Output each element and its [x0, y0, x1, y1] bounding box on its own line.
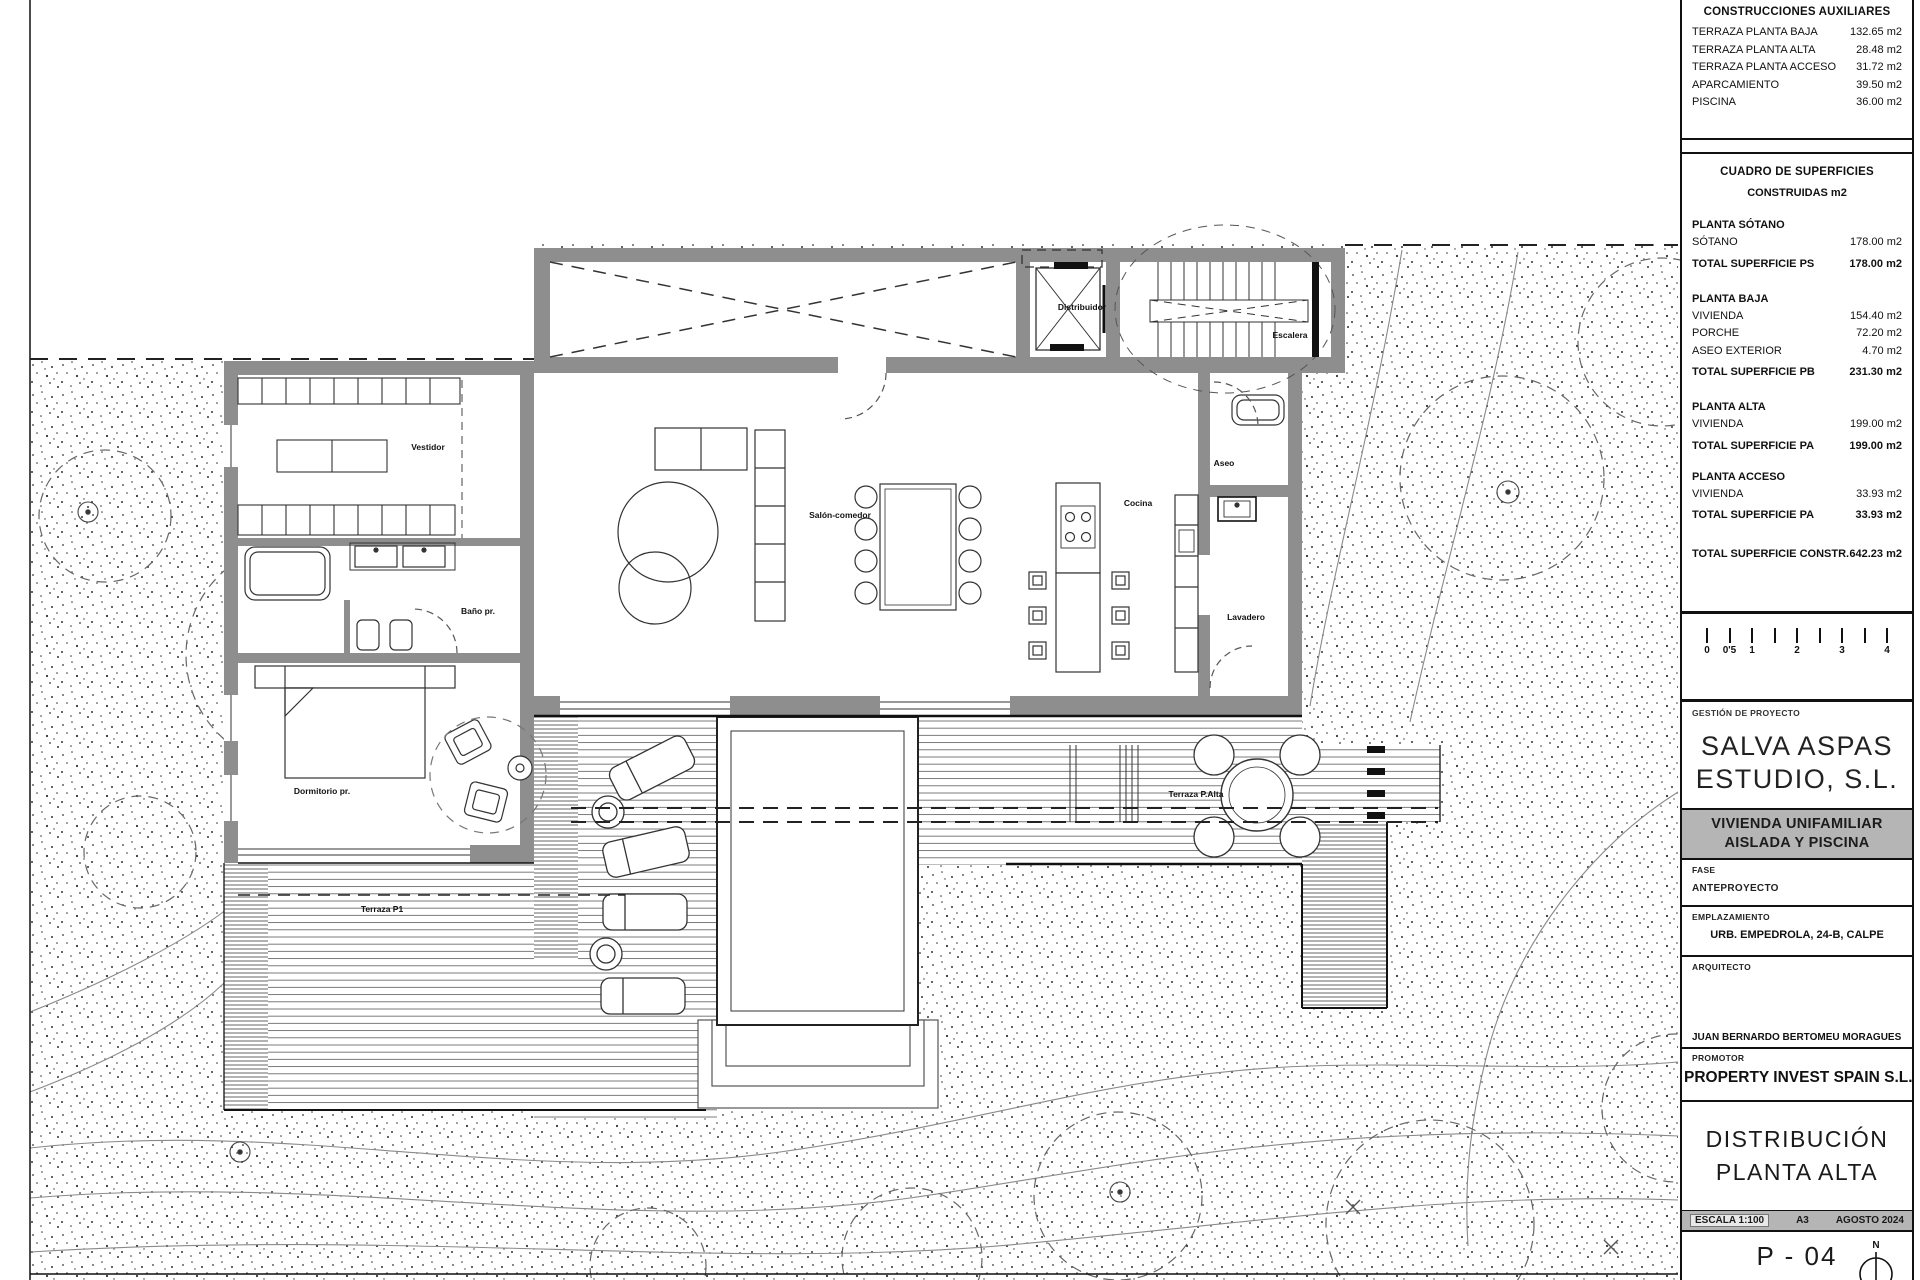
sheet-number: P - 04: [1757, 1241, 1838, 1272]
group-total: TOTAL SUPERFICIE PS178.00 m2: [1692, 255, 1902, 273]
location-value: URB. EMPEDROLA, 24-B, CALPE: [1692, 929, 1902, 941]
drawing-title-line: PLANTA ALTA: [1716, 1156, 1878, 1189]
group-total: TOTAL SUPERFICIE PA199.00 m2: [1692, 437, 1902, 455]
scale-tick: 3: [1835, 628, 1849, 657]
table-row: PORCHE72.20 m2: [1692, 325, 1902, 343]
group-total: TOTAL SUPERFICIE PB231.30 m2: [1692, 363, 1902, 381]
north-arrow-icon: N: [1854, 1236, 1898, 1280]
room-label: Vestidor: [411, 442, 445, 452]
drawing-title-line: DISTRIBUCIÓN: [1706, 1123, 1889, 1156]
table-row: APARCAMIENTO39.50 m2: [1692, 77, 1902, 95]
room-label: Cocina: [1124, 498, 1153, 508]
drawing-title-section: DISTRIBUCIÓN PLANTA ALTA: [1682, 1102, 1912, 1210]
paper-size: A3: [1796, 1215, 1809, 1226]
developer-section: PROMOTOR PROPERTY INVEST SPAIN S.L.: [1682, 1049, 1912, 1102]
group-heading: PLANTA ALTA: [1692, 399, 1902, 416]
firm-name: SALVA ASPAS ESTUDIO, S.L.: [1692, 730, 1902, 796]
swimming-pool: [717, 717, 918, 1025]
table-row: TERRAZA PLANTA BAJA132.65 m2: [1692, 24, 1902, 42]
aux-table-title: CONSTRUCCIONES AUXILIARES: [1692, 6, 1902, 18]
table-row: SÓTANO178.00 m2: [1692, 234, 1902, 252]
management-label: GESTIÓN DE PROYECTO: [1692, 708, 1902, 718]
graphic-scale-bar: 0 0'5 1 2 3 4: [1682, 614, 1912, 702]
phase-section: FASE ANTEPROYECTO: [1682, 860, 1912, 907]
scale-tick: 1: [1745, 628, 1759, 657]
table-row: TERRAZA PLANTA ALTA28.48 m2: [1692, 42, 1902, 60]
architect-name: JUAN BERNARDO BERTOMEU MORAGUES: [1692, 1032, 1902, 1043]
architect-label: ARQUITECTO: [1692, 962, 1902, 972]
table-row: VIVIENDA154.40 m2: [1692, 308, 1902, 326]
floor-plan-drawing: Vestidor Baño pr. Dormitorio pr. Salón-c…: [0, 0, 1920, 1280]
project-banner: VIVIENDA UNIFAMILIAR AISLADA Y PISCINA: [1682, 808, 1912, 860]
room-label: Terraza P.Alta: [1169, 789, 1224, 799]
pool-surround-steps: [698, 1020, 938, 1108]
table-row: ASEO EXTERIOR4.70 m2: [1692, 343, 1902, 361]
table-row: VIVIENDA33.93 m2: [1692, 486, 1902, 504]
group-heading: PLANTA ACCESO: [1692, 469, 1902, 486]
plot-upper-white: [30, 243, 540, 361]
room-label: Salón-comedor: [809, 510, 872, 520]
drawing-date: AGOSTO 2024: [1836, 1215, 1904, 1226]
phase-label: FASE: [1692, 865, 1902, 875]
sheet-number-section: P - 04 N: [1682, 1232, 1912, 1280]
room-label: Terraza P1: [361, 904, 404, 914]
surfaces-table: CUADRO DE SUPERFICIES CONSTRUIDAS m2 PLA…: [1682, 152, 1912, 614]
room-label: Lavadero: [1227, 612, 1265, 622]
room-label: Aseo: [1214, 458, 1235, 468]
surfaces-subtitle: CONSTRUIDAS m2: [1692, 187, 1902, 199]
scale-tick: 2: [1790, 628, 1804, 657]
scale-tick: 0'5: [1723, 628, 1737, 657]
group-heading: PLANTA SÓTANO: [1692, 217, 1902, 234]
surfaces-title: CUADRO DE SUPERFICIES: [1692, 166, 1902, 178]
drawing-sheet: Vestidor Baño pr. Dormitorio pr. Salón-c…: [0, 0, 1920, 1280]
svg-text:N: N: [1872, 1240, 1879, 1251]
grand-total: TOTAL SUPERFICIE CONSTR.642.23 m2: [1692, 548, 1902, 560]
table-row: VIVIENDA199.00 m2: [1692, 416, 1902, 434]
room-label: Baño pr.: [461, 606, 495, 616]
project-management-section: GESTIÓN DE PROYECTO SALVA ASPAS ESTUDIO,…: [1682, 702, 1912, 808]
scale-tick: [1858, 628, 1872, 657]
scale-tick: 4: [1880, 628, 1894, 657]
room-label: Distribuidor: [1058, 302, 1107, 312]
scale-tick: [1813, 628, 1827, 657]
scale-tick: [1768, 628, 1782, 657]
phase-value: ANTEPROYECTO: [1692, 883, 1902, 894]
table-row: TERRAZA PLANTA ACCESO31.72 m2: [1692, 59, 1902, 77]
table-row: PISCINA36.00 m2: [1692, 94, 1902, 112]
developer-label: PROMOTOR: [1684, 1053, 1910, 1063]
scale-value: ESCALA 1:100: [1690, 1214, 1769, 1227]
scale-tick: 0: [1700, 628, 1714, 657]
location-label: EMPLAZAMIENTO: [1692, 912, 1902, 922]
group-heading: PLANTA BAJA: [1692, 291, 1902, 308]
title-block: CONSTRUCCIONES AUXILIARES TERRAZA PLANTA…: [1680, 0, 1914, 1280]
room-label: Dormitorio pr.: [294, 786, 350, 796]
architect-section: ARQUITECTO JUAN BERNARDO BERTOMEU MORAGU…: [1682, 957, 1912, 1049]
group-total: TOTAL SUPERFICIE PA33.93 m2: [1692, 506, 1902, 524]
room-label: Escalera: [1273, 330, 1308, 340]
divider: [1682, 140, 1912, 152]
location-section: EMPLAZAMIENTO URB. EMPEDROLA, 24-B, CALP…: [1682, 907, 1912, 957]
developer-name: PROPERTY INVEST SPAIN S.L.: [1684, 1069, 1910, 1087]
aux-constructions-table: CONSTRUCCIONES AUXILIARES TERRAZA PLANTA…: [1682, 0, 1912, 140]
drawing-meta-strip: ESCALA 1:100 A3 AGOSTO 2024: [1682, 1210, 1912, 1232]
